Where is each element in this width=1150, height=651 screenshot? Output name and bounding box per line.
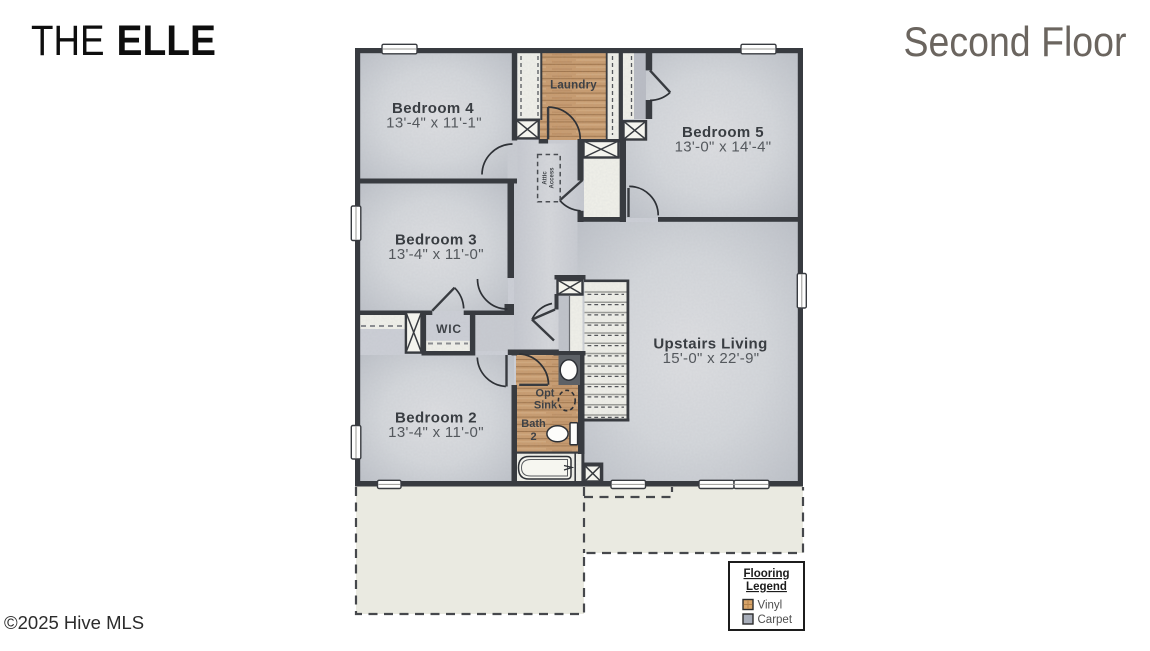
svg-text:Attic: Attic — [543, 171, 549, 185]
svg-text:Access: Access — [550, 167, 556, 189]
svg-text:Laundry: Laundry — [550, 80, 597, 92]
svg-text:WIC: WIC — [436, 322, 462, 336]
svg-text:13'-4" x 11'-0": 13'-4" x 11'-0" — [388, 424, 484, 441]
svg-text:2: 2 — [530, 431, 536, 443]
svg-text:15'-0" x 22'-9": 15'-0" x 22'-9" — [663, 350, 760, 367]
svg-text:13'-4" x 11'-0": 13'-4" x 11'-0" — [388, 246, 484, 263]
svg-text:Bath: Bath — [521, 418, 546, 430]
svg-text:13'-4" x 11'-1": 13'-4" x 11'-1" — [386, 115, 482, 132]
svg-text:13'-0" x 14'-4": 13'-0" x 14'-4" — [675, 139, 772, 156]
svg-text:©2025 Hive MLS: ©2025 Hive MLS — [4, 612, 144, 633]
svg-text:Second Floor: Second Floor — [904, 18, 1127, 65]
svg-text:ELLE: ELLE — [117, 17, 217, 65]
svg-text:Opt: Opt — [536, 388, 555, 400]
svg-text:Flooring: Flooring — [744, 568, 790, 580]
svg-text:Legend: Legend — [746, 581, 787, 593]
svg-text:THE: THE — [31, 17, 105, 65]
svg-text:Vinyl: Vinyl — [758, 600, 783, 612]
svg-text:Carpet: Carpet — [758, 614, 793, 626]
svg-text:Sink: Sink — [534, 400, 558, 412]
